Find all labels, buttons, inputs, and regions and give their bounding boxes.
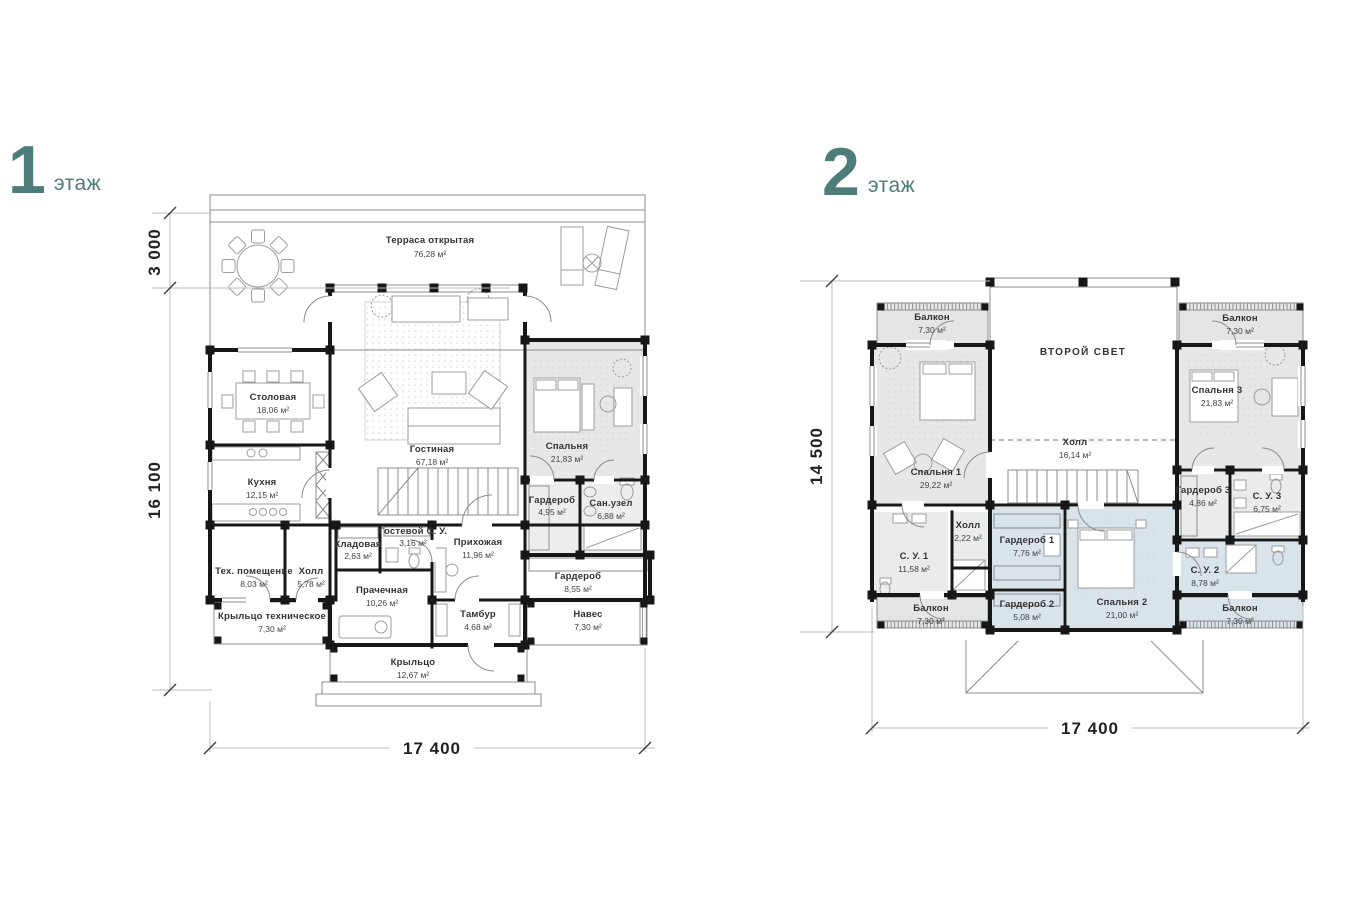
room-area-bedroom1: 29,22 м² xyxy=(920,480,952,490)
room-area-bedroom: 21,83 м² xyxy=(551,454,583,464)
room-area-su2: 8,78 м² xyxy=(1191,578,1219,588)
room-label-su3: С. У. 3 xyxy=(1253,491,1282,502)
room-label-tambour: Тамбур xyxy=(460,609,496,620)
room-label-bedroom2: Спальня 2 xyxy=(1097,597,1148,608)
room-label-su1: С. У. 1 xyxy=(900,551,929,562)
room-label-hall: Холл xyxy=(299,566,324,577)
floor1-plan: Терраса открытая 76,28 м² Столовая 18,06… xyxy=(145,195,655,760)
room-label-wardrobe1: Гардероб xyxy=(529,495,576,506)
room-area-balcony-tr: 7,30 м² xyxy=(1226,326,1254,336)
room-label-guest-wc: Гостевой С. У. xyxy=(379,526,447,537)
room-area-hall: 5,78 м² xyxy=(297,579,325,589)
room-label-wardrobe3: Гардероб 3 xyxy=(1176,485,1231,496)
room-label-bedroom1: Спальня 1 xyxy=(911,467,962,478)
room-label-tech: Тех. помещение xyxy=(215,566,293,577)
room-area-tech-porch: 7,30 м² xyxy=(258,624,286,634)
room-label-hall-small: Холл xyxy=(956,520,981,531)
room-area-kitchen: 12,15 м² xyxy=(246,490,278,500)
room-label-balcony-bl: Балкон xyxy=(913,603,949,614)
bench-icon xyxy=(509,604,520,636)
dim-16100: 16 100 xyxy=(145,461,164,519)
room-area-su3: 6,75 м² xyxy=(1253,504,1281,514)
room-label-balcony-tl: Балкон xyxy=(914,312,950,323)
roof-outline xyxy=(966,640,1203,693)
room-label-bedroom: Спальня xyxy=(546,441,588,452)
room-area-balcony-br: 7,30 м² xyxy=(1226,616,1254,626)
room-area-balcony-bl: 7,30 м² xyxy=(917,616,945,626)
room-label-porch: Крыльцо xyxy=(391,657,436,668)
room-area-dining: 18,06 м² xyxy=(257,405,289,415)
room-label-bedroom3: Спальня 3 xyxy=(1192,385,1243,396)
floor-plans-canvas: Терраса открытая 76,28 м² Столовая 18,06… xyxy=(0,0,1360,900)
room-area-wardrobe3: 4,86 м² xyxy=(1189,498,1217,508)
room-area-hall-small: 2,22 м² xyxy=(954,533,982,543)
room-label-su2: С. У. 2 xyxy=(1191,565,1220,576)
room-label-canopy: Навес xyxy=(573,609,602,620)
room-label-tech-porch: Крыльцо техническое xyxy=(218,611,326,622)
dim-3000: 3 000 xyxy=(145,228,164,276)
room-area-tambour: 4,68 м² xyxy=(464,622,492,632)
hall-cabinet-icon xyxy=(435,548,446,592)
dim-17400-floor1: 17 400 xyxy=(403,739,461,758)
room-label-wardrobe2: Гардероб xyxy=(555,571,602,582)
bench-icon xyxy=(436,604,447,636)
room-label-storage: Кладовая xyxy=(334,539,381,550)
toilet-icon xyxy=(409,554,419,568)
room-area-entry-hall: 11,96 м² xyxy=(462,550,494,560)
washer-icon xyxy=(339,616,391,638)
room-label-wardrobe2f2: Гардероб 2 xyxy=(1000,599,1055,610)
room-label-living: Гостиная xyxy=(410,444,455,455)
room-area-wardrobe1: 4,95 м² xyxy=(538,507,566,517)
room-area-wardrobe2f2: 5,08 м² xyxy=(1013,612,1041,622)
lounger-icons xyxy=(561,226,629,289)
room-area-porch: 12,67 м² xyxy=(397,670,429,680)
room-label-terrace: Терраса открытая xyxy=(386,235,474,246)
mirror-icon xyxy=(446,564,458,576)
toilet-tank-icon xyxy=(409,548,420,554)
room-area-bedroom3: 21,83 м² xyxy=(1201,398,1233,408)
room-label-dining: Столовая xyxy=(250,392,297,403)
wardrobe-hatch xyxy=(529,558,647,571)
room-area-sanuzel: 6,88 м² xyxy=(597,511,625,521)
room-area-storage: 2,63 м² xyxy=(344,551,372,561)
room-label-balcony-br: Балкон xyxy=(1222,603,1258,614)
room-label-entry-hall: Прихожая xyxy=(454,537,502,548)
room-area-living: 67,18 м² xyxy=(416,457,448,467)
room-area-guest-wc: 3,16 м² xyxy=(399,538,427,548)
room-label-balcony-tr: Балкон xyxy=(1222,313,1258,324)
room-area-wardrobe1f2: 7,76 м² xyxy=(1013,548,1041,558)
room-area-balcony-tl: 7,30 м² xyxy=(918,325,946,335)
room-area-laundry: 10,26 м² xyxy=(366,598,398,608)
storage-hatch xyxy=(338,527,378,538)
room-area-su1: 11,58 м² xyxy=(898,564,930,574)
room-area-hall2: 16,14 м² xyxy=(1059,450,1091,460)
terrace-table-icon xyxy=(222,230,294,302)
room-label-hall2: Холл xyxy=(1063,437,1088,448)
dim-17400-floor2: 17 400 xyxy=(1061,719,1119,738)
page: 1 этаж 2 этаж xyxy=(0,0,1360,900)
floor2-plan: Балкон 7,30 м² ВТОРОЙ СВЕТ Балкон 7,30 м… xyxy=(800,275,1310,740)
dim-14500: 14 500 xyxy=(807,427,826,485)
room-label-kitchen: Кухня xyxy=(248,477,277,488)
room-label-second-light: ВТОРОЙ СВЕТ xyxy=(1040,345,1126,358)
room-area-wardrobe2: 8,55 м² xyxy=(564,584,592,594)
room-area-canopy: 7,30 м² xyxy=(574,622,602,632)
room-area-bedroom2: 21,00 м² xyxy=(1106,610,1138,620)
room-area-tech: 8,03 м² xyxy=(240,579,268,589)
room-area-terrace: 76,28 м² xyxy=(414,249,446,259)
room-label-sanuzel: Сан.узел xyxy=(589,498,632,509)
sink-icon xyxy=(386,548,398,562)
room-label-laundry: Прачечная xyxy=(356,585,408,596)
room-label-wardrobe1f2: Гардероб 1 xyxy=(1000,535,1055,546)
